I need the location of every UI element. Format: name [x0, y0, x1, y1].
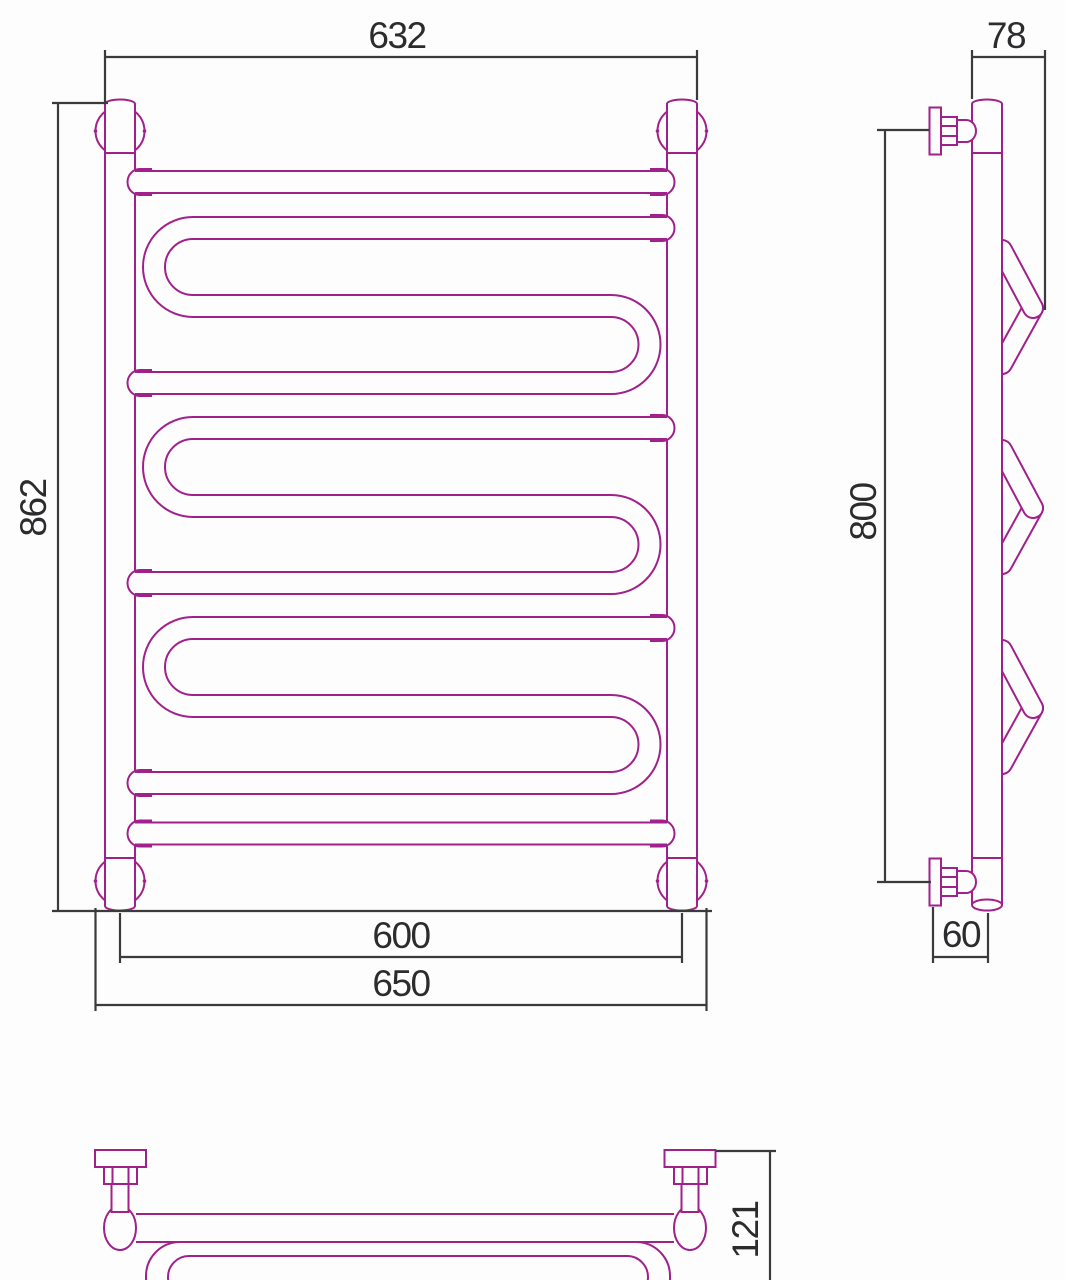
dim-label-600: 600: [372, 915, 430, 956]
towel-rail-technical-drawing: 632 862 600 650 78 800 60 121: [0, 0, 1065, 1280]
side-view: [930, 100, 1034, 911]
front-view: [94, 100, 709, 911]
coil-chevron-2: [1002, 450, 1033, 564]
dimension-outer-width-632: 632: [105, 15, 697, 104]
dim-label-800: 800: [843, 482, 884, 540]
dim-label-60: 60: [942, 914, 981, 955]
dimension-wall-offset-60: 60: [933, 907, 988, 963]
dim-label-78: 78: [987, 15, 1025, 56]
dimension-mount-height-800: 800: [843, 130, 931, 882]
coil-chevron-1: [1002, 250, 1033, 364]
serpentine-coil-1: [135, 228, 667, 383]
valve-fitting-bottom: [930, 859, 977, 906]
tube-end-cap: [972, 900, 1002, 911]
serpentine-coil-2: [135, 428, 667, 583]
dim-label-632: 632: [368, 15, 425, 56]
side-post-tube: [972, 100, 1002, 911]
coil-loop-inner: [168, 1256, 648, 1280]
technical-drawing-page: 632 862 600 650 78 800 60 121: [0, 0, 1065, 1280]
dim-label-121: 121: [725, 1201, 766, 1258]
coil-chevron-3: [1002, 650, 1033, 764]
wall-bracket-left: [95, 1150, 146, 1212]
serpentine-coil-3: [135, 628, 667, 783]
valve-fitting-top: [930, 108, 977, 155]
top-view: [95, 1150, 716, 1280]
wall-bracket-right: [665, 1150, 716, 1212]
dim-label-650: 650: [372, 963, 430, 1004]
dim-label-862: 862: [13, 479, 54, 536]
dimension-axis-width-600: 600: [120, 913, 682, 963]
